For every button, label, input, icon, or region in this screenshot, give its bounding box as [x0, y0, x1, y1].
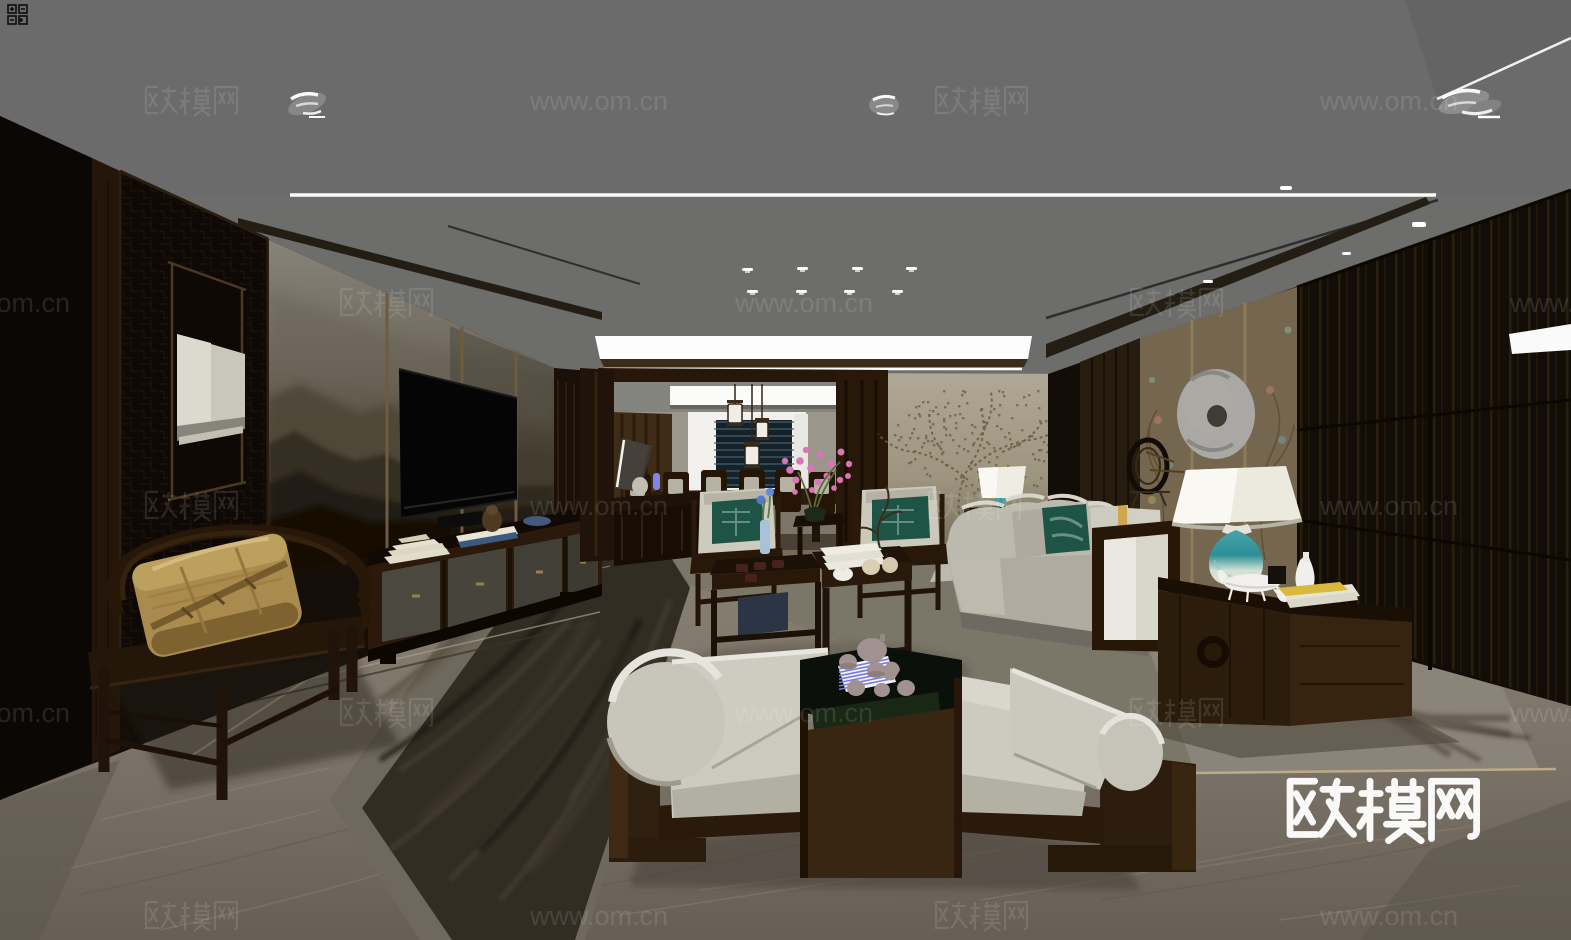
svg-text:www.om.cn: www.om.cn [1509, 698, 1571, 728]
svg-text:www.om.cn: www.om.cn [529, 491, 668, 521]
svg-text:www.om.cn: www.om.cn [1319, 86, 1458, 116]
svg-text:www.om.cn: www.om.cn [1509, 288, 1571, 318]
svg-text:www.om.cn: www.om.cn [1319, 491, 1458, 521]
svg-text:www.om.cn: www.om.cn [1319, 901, 1458, 931]
svg-text:www.om.cn: www.om.cn [0, 288, 70, 318]
svg-text:www.om.cn: www.om.cn [0, 698, 70, 728]
svg-text:www.om.cn: www.om.cn [529, 86, 668, 116]
svg-text:www.om.cn: www.om.cn [529, 901, 668, 931]
svg-text:www.om.cn: www.om.cn [734, 698, 873, 728]
svg-text:www.om.cn: www.om.cn [734, 288, 873, 318]
